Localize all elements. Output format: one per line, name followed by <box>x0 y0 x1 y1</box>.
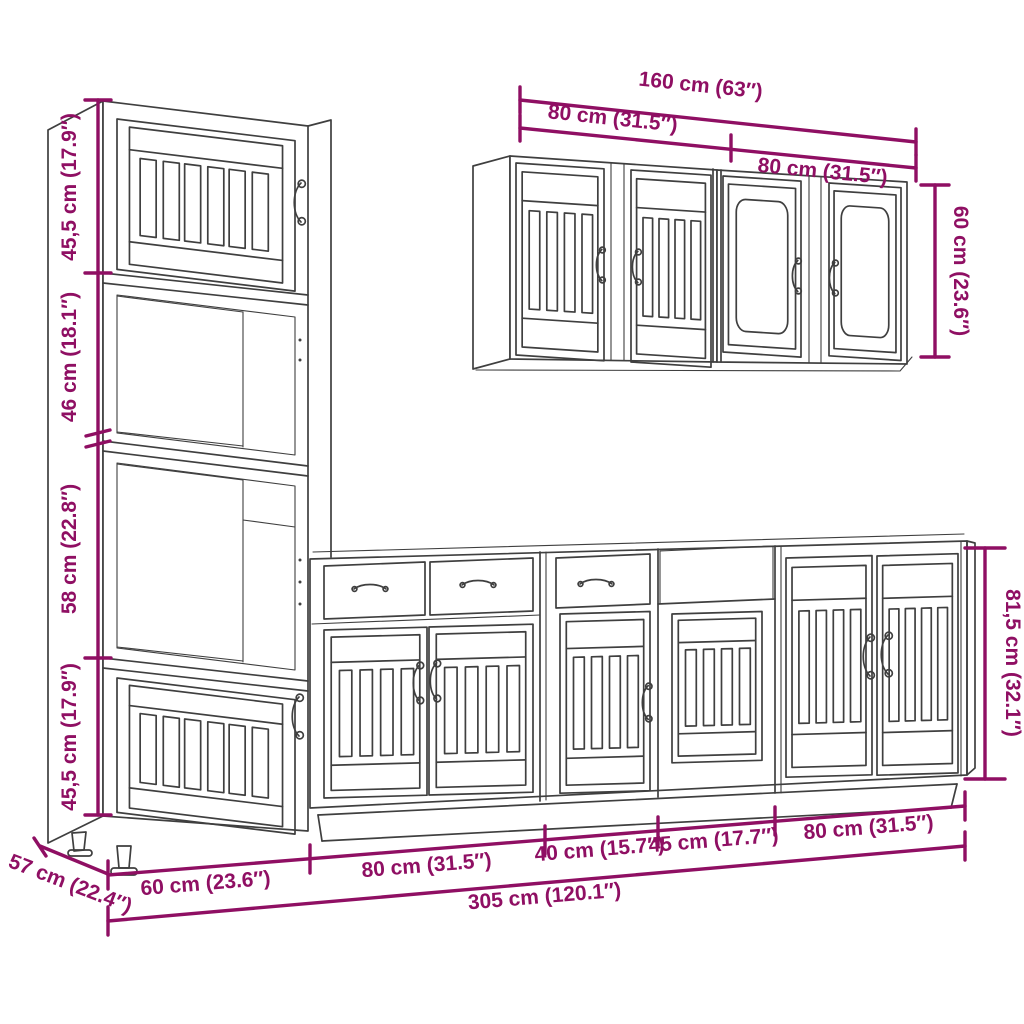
tall-cabinet <box>48 101 331 875</box>
wall-cabinets <box>473 156 912 371</box>
cabinet-dimension-diagram: 45,5 cm (17.9″) 46 cm (18.1″) 58 cm (22.… <box>0 0 1024 1024</box>
dim-tall-section-2-label: 46 cm (18.1″) <box>58 292 81 422</box>
dim-base-height-label: 81,5 cm (32.1″) <box>1001 589 1024 737</box>
dim-wall-height-label: 60 cm (23.6″) <box>949 206 972 336</box>
diagram-canvas: 45,5 cm (17.9″) 46 cm (18.1″) 58 cm (22.… <box>0 0 1024 1024</box>
dim-tall-section-1-label: 45,5 cm (17.9″) <box>58 113 81 261</box>
dim-tall-section-4-label: 45,5 cm (17.9″) <box>58 663 81 811</box>
dim-tall-section-3-label: 58 cm (22.8″) <box>58 484 81 614</box>
